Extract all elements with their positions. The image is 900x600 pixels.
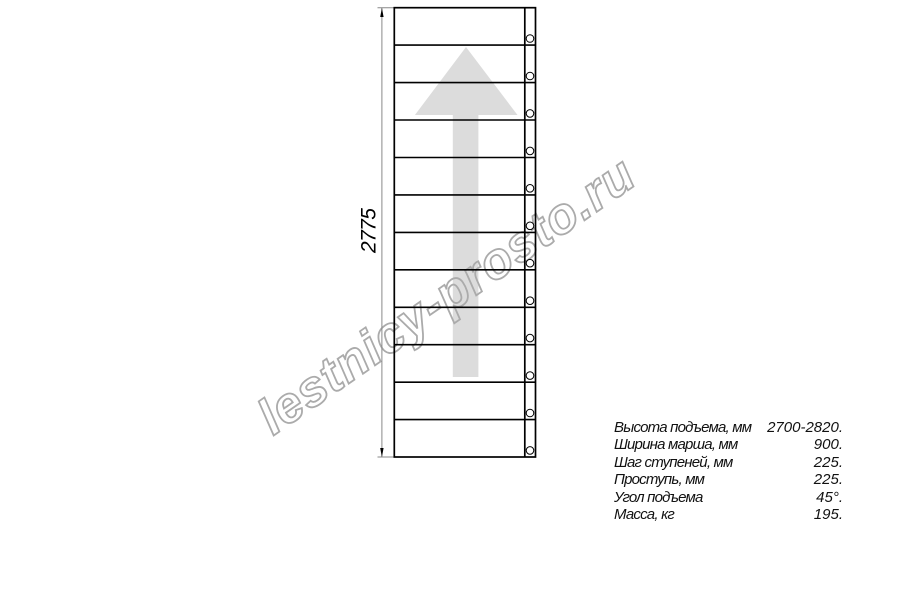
svg-text:2775: 2775 (358, 208, 381, 254)
svg-text:lestnicy-prosto.ru: lestnicy-prosto.ru (247, 145, 646, 445)
